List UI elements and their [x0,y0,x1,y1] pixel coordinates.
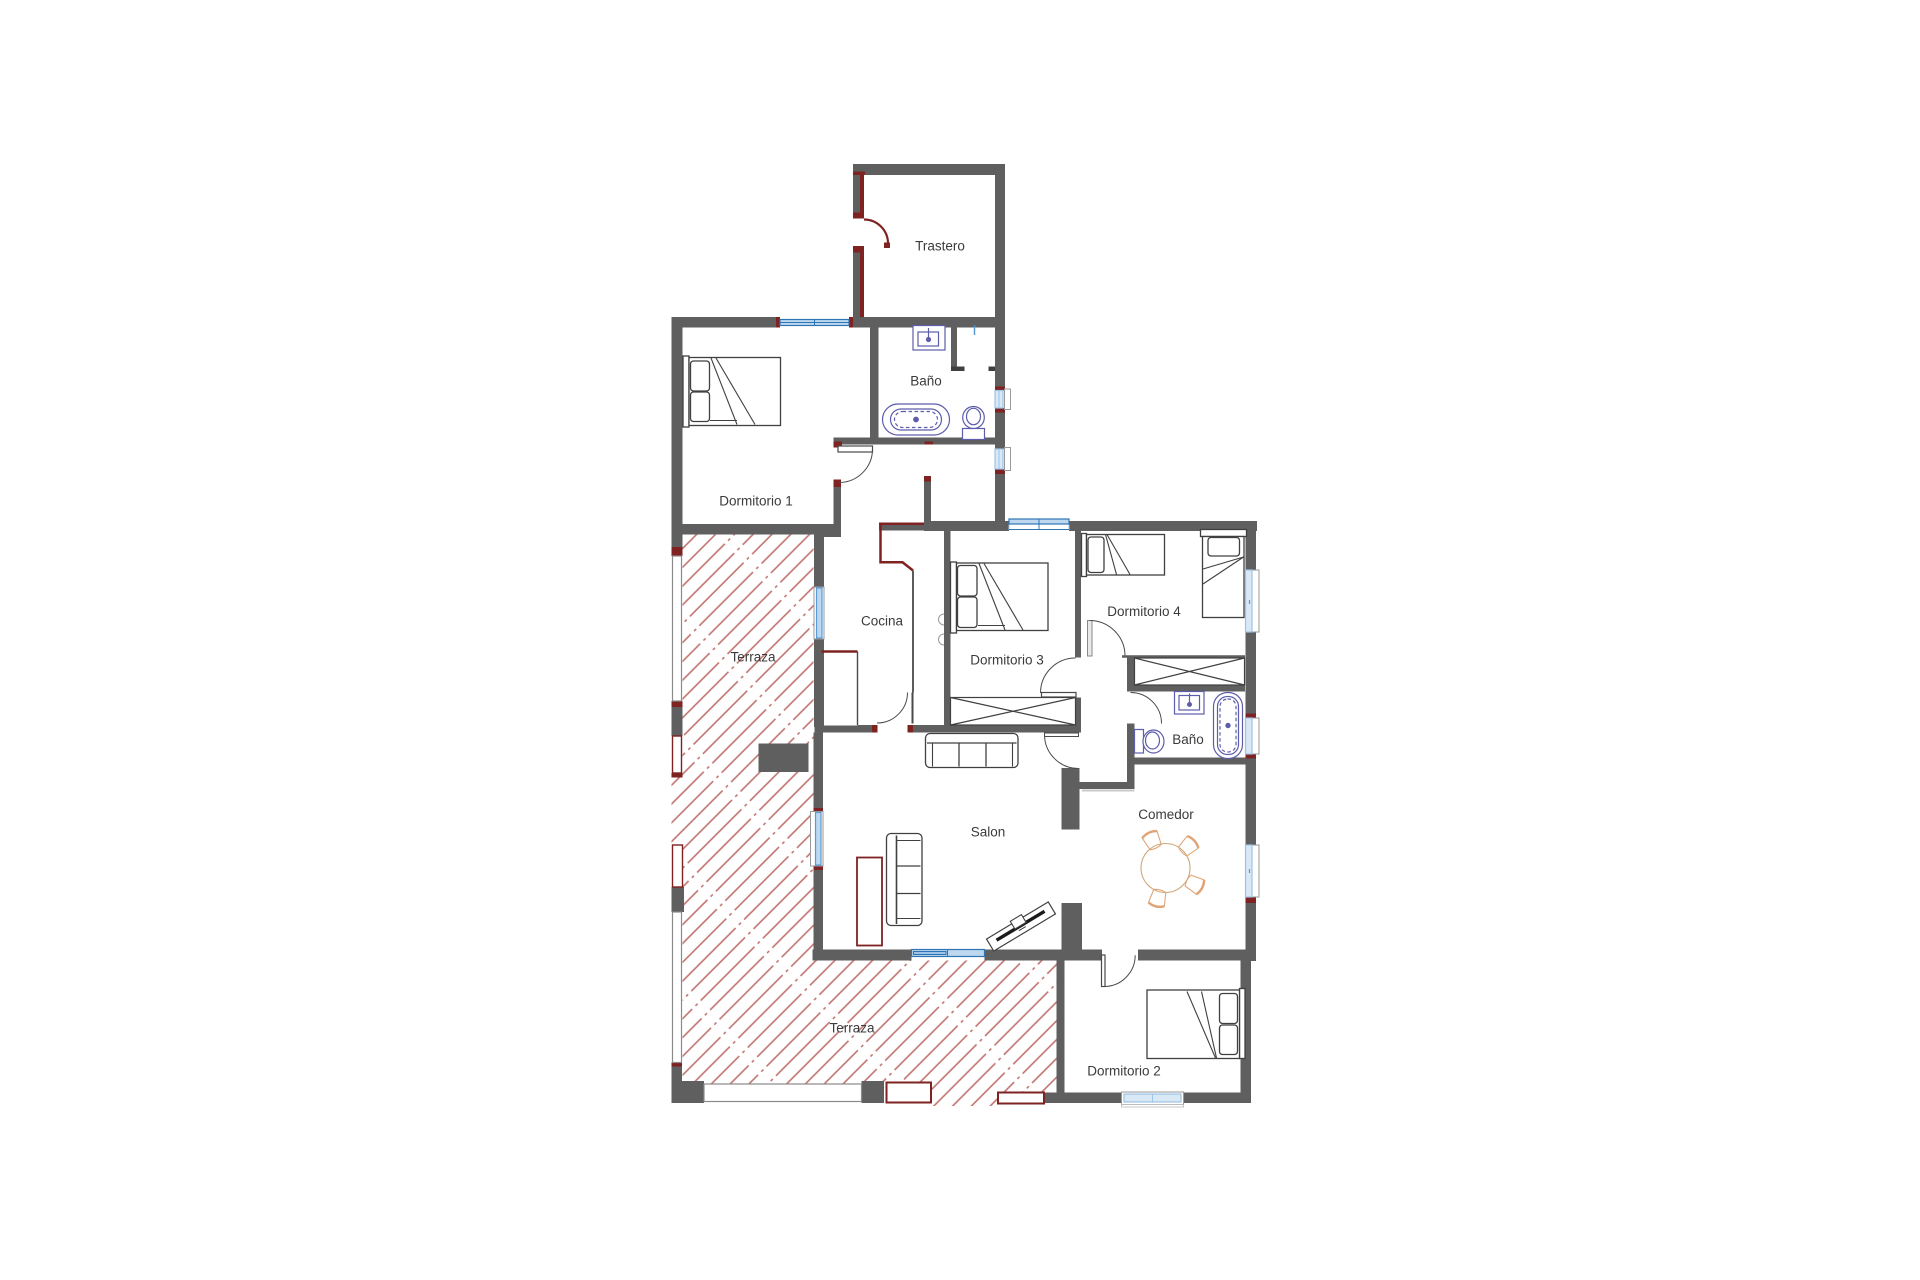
svg-text:Dormitorio 4: Dormitorio 4 [1107,604,1181,619]
svg-text:Baño: Baño [1172,732,1204,747]
svg-text:Dormitorio 2: Dormitorio 2 [1087,1064,1161,1079]
svg-text:Terraza: Terraza [829,1021,875,1036]
svg-text:Comedor: Comedor [1138,807,1194,822]
svg-text:Dormitorio 3: Dormitorio 3 [970,653,1044,668]
svg-text:Dormitorio 1: Dormitorio 1 [719,494,793,509]
svg-text:Terraza: Terraza [730,650,776,665]
svg-text:Baño: Baño [910,374,942,389]
svg-text:Cocina: Cocina [861,614,904,629]
svg-text:Salon: Salon [971,825,1006,840]
svg-text:Trastero: Trastero [915,239,965,254]
